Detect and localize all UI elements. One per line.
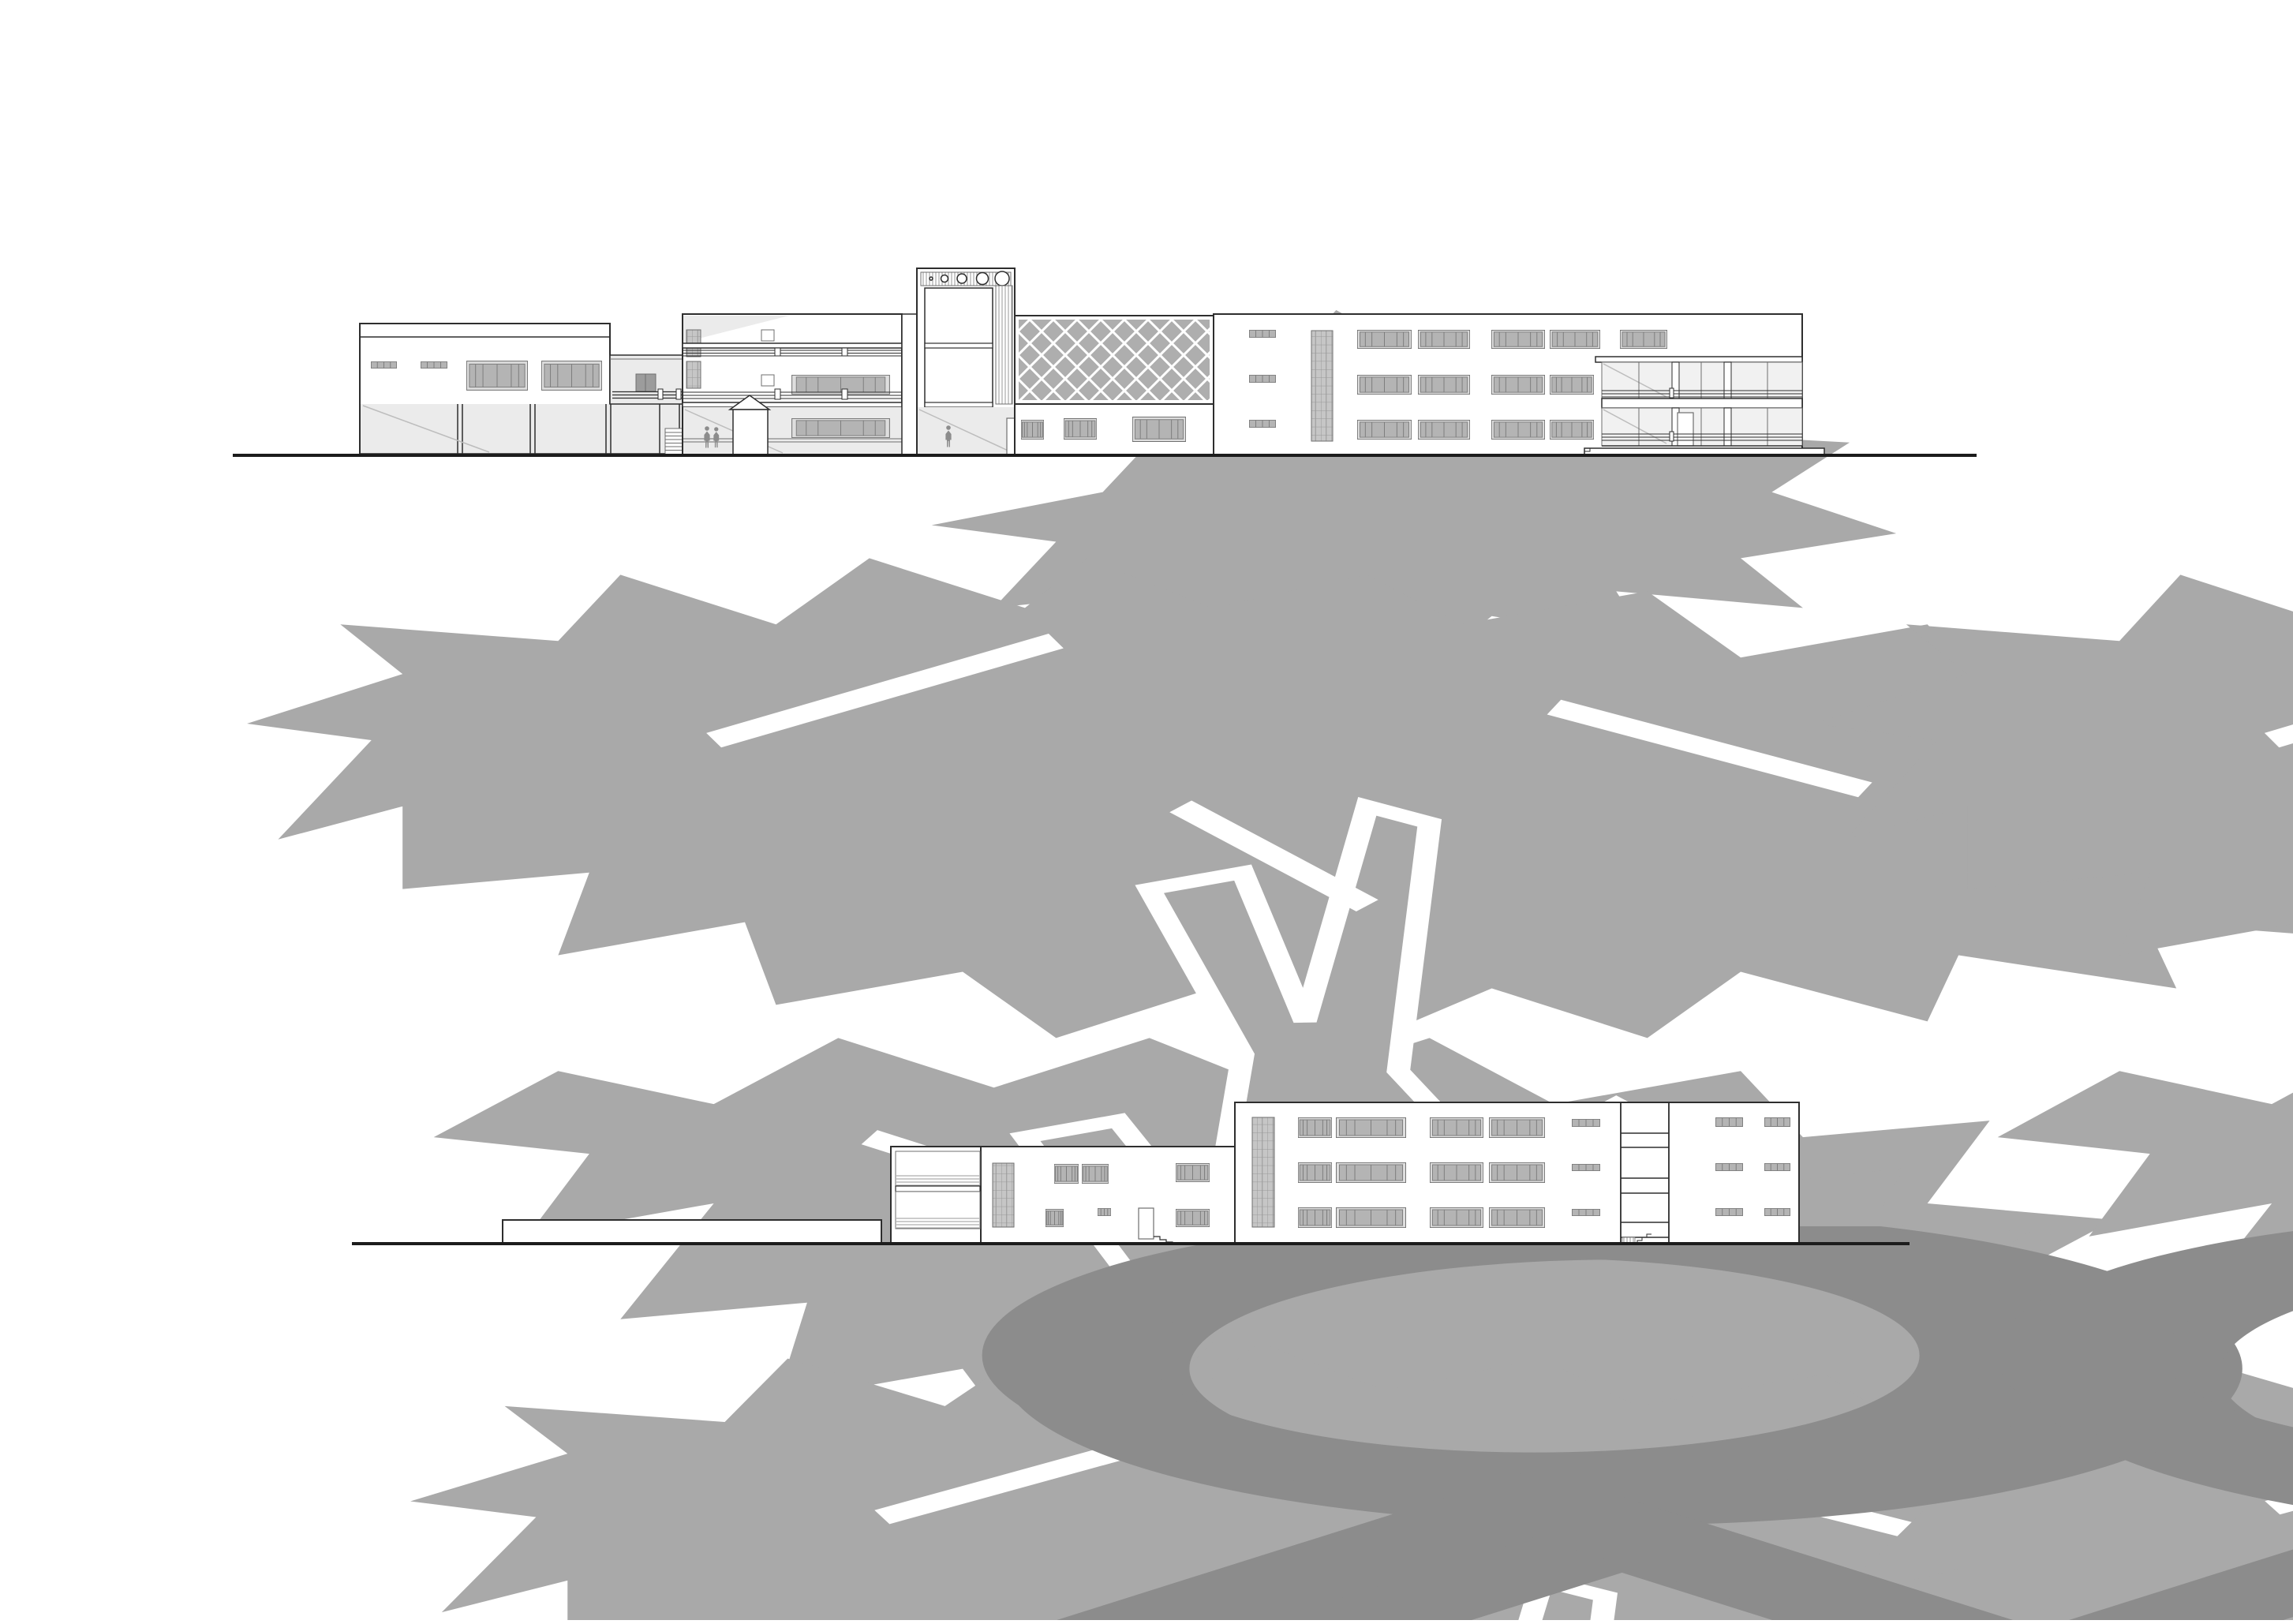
small-window [1764,1208,1790,1216]
wall-opening [761,330,774,341]
glazing [1602,362,1802,399]
window-band [1489,1207,1544,1227]
window-band [1550,375,1593,394]
window-band [1489,1162,1544,1182]
window-band [1336,1117,1405,1137]
roof-slab [1595,357,1802,362]
window-band [1298,1117,1332,1137]
door [1139,1208,1154,1239]
window [1064,418,1097,439]
floor-slab [683,402,902,407]
louvered-opening [896,1151,980,1186]
tile-strip [1252,1117,1274,1227]
strip-window [371,361,396,369]
hatched-pier [996,286,1012,404]
window-band [1357,375,1411,394]
window-band [1550,330,1599,348]
window-band [1430,1162,1483,1182]
louver-panel [686,361,701,388]
window-band [1418,375,1469,394]
lattice-screen [1015,316,1214,455]
strip-window [1572,1164,1599,1171]
clerestory-tower [917,268,1019,455]
porthole-icon [957,274,967,283]
louvered-opening [896,1192,980,1229]
strip-window [1249,375,1275,383]
window [1176,1163,1210,1181]
small-window [1098,1208,1111,1216]
window-band [466,361,527,391]
hall-wing [891,1147,1235,1244]
floor-slab [1602,399,1802,408]
window-band [1418,420,1469,439]
stair [665,428,683,455]
tile-strip [1311,331,1333,441]
window-band [1357,330,1411,348]
ground-floor-glazing [360,404,682,454]
drawing-canvas [0,0,2293,1624]
window [1082,1164,1109,1183]
window [1054,1164,1079,1183]
small-window [1715,1163,1742,1171]
wall-pier [902,314,917,455]
window-band [1298,1207,1332,1227]
window-band [792,418,890,437]
window-band [1430,1117,1483,1137]
window [1176,1209,1210,1226]
strip-window [421,361,447,369]
window-band [1418,330,1469,348]
porthole-icon [977,273,989,285]
window-band [1491,375,1544,394]
door [1678,413,1693,446]
balcony-block [683,314,902,455]
floor-slab [925,402,993,407]
floor-slab [683,343,902,348]
tile-strip [993,1163,1014,1227]
porthole-icon [930,277,933,280]
strip-window [1572,1119,1599,1127]
window-band [1491,330,1544,348]
window [1021,420,1044,439]
window-band [1491,420,1544,439]
floor-slab [925,343,993,348]
strip-window [1249,420,1275,428]
window-band [1298,1162,1332,1182]
window-band [1489,1117,1544,1137]
small-window [1715,1208,1742,1216]
window [1132,417,1185,442]
window-band [792,375,890,394]
floor-slab [896,1186,980,1192]
window-band [1336,1207,1405,1227]
wall-opening [761,375,774,386]
window [1046,1209,1064,1226]
window-band [1430,1207,1483,1227]
strip-window [1572,1209,1599,1216]
window-band [541,361,601,391]
porthole-icon [995,271,1009,286]
window-band [1620,330,1666,348]
glazed-pavilion [1584,357,1824,455]
porch [733,410,768,455]
strip-window [1249,330,1275,338]
small-window [1764,1163,1790,1171]
window-band [1550,420,1593,439]
porthole-icon [941,275,948,283]
window-band [1357,420,1411,439]
small-window [1715,1117,1742,1127]
small-window [1764,1117,1790,1127]
window-band [1336,1162,1405,1182]
